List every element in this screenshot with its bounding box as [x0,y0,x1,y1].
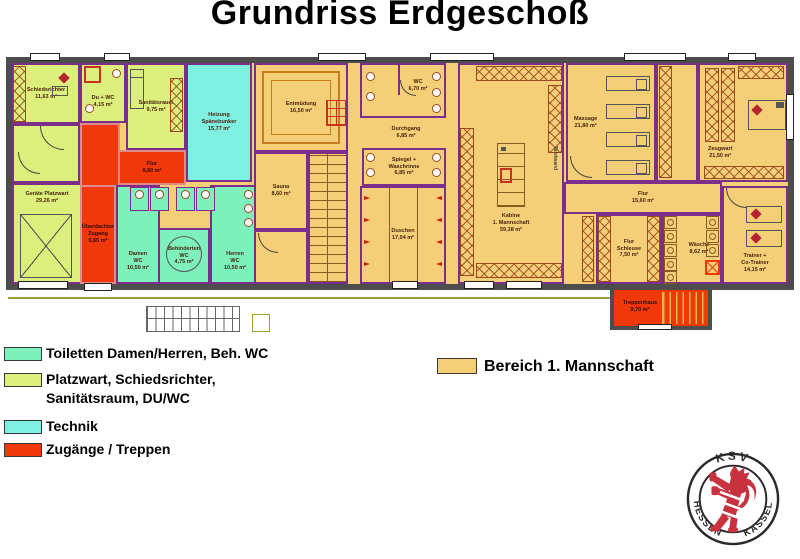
floor-plan-page: Grundriss Erdgeschoß Schiedsrichter 11,6… [0,0,800,559]
stair-divider [146,318,240,319]
exterior-wall [6,57,794,290]
legend-swatch-zugaenge [4,443,42,457]
window [638,324,672,330]
room-label: Treppenhaus 9,70 m² [618,300,662,314]
garage-opening [18,281,68,289]
legend-label-mannschaft: Bereich 1. Mannschaft [484,356,654,378]
walkway-line [8,297,610,299]
window [506,281,542,289]
window [30,53,60,61]
window [430,53,494,61]
legend-swatch-toiletten [4,347,42,361]
legend-swatch-platzwart [4,373,42,387]
exterior-step [252,314,270,332]
window [464,281,494,289]
window [786,94,794,140]
window [728,53,756,61]
legend-label-platzwart: Platzwart, Schiedsrichter, Sanitätsraum,… [46,370,216,408]
window [624,53,686,61]
legend-swatch-technik [4,420,42,434]
window [392,281,418,289]
stairs [662,292,708,324]
exterior-stairs [146,306,240,332]
window [104,53,130,61]
page-title: Grundriss Erdgeschoß [0,0,800,33]
legend-label-toiletten: Toiletten Damen/Herren, Beh. WC [46,344,268,363]
ksv-hessen-kassel-logo: KSV HESSEN KASSEL [684,450,782,548]
legend-label-technik: Technik [46,417,98,436]
legend-swatch-mannschaft [437,358,477,374]
window [318,53,366,61]
legend-label-zugaenge: Zugänge / Treppen [46,440,170,459]
entrance-opening [84,283,112,291]
